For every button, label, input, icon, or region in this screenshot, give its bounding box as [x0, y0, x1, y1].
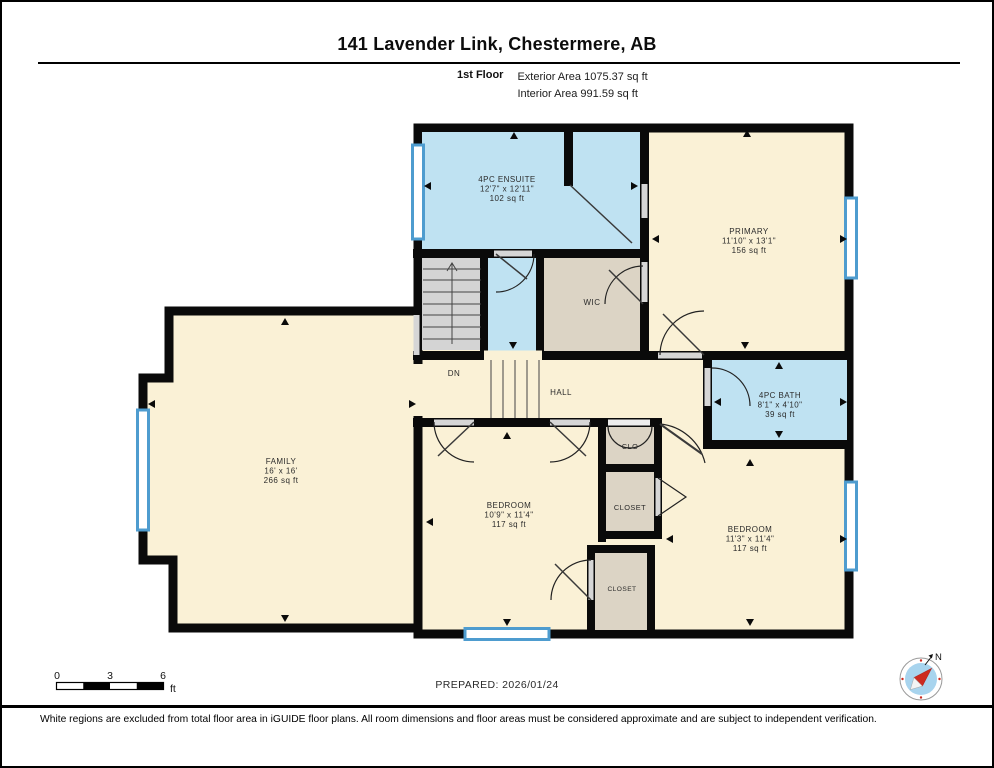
svg-text:266 sq ft: 266 sq ft [264, 476, 299, 485]
svg-text:8'1" x 4'10": 8'1" x 4'10" [758, 401, 803, 410]
window-family-left [138, 410, 149, 530]
room-label-bedroom-right: BEDROOM [728, 525, 773, 534]
window-ensuite-left [413, 145, 424, 239]
window-primary-right [846, 198, 857, 278]
svg-text:10'9" x 11'4": 10'9" x 11'4" [484, 511, 533, 520]
compass-n-label: N [935, 652, 942, 663]
room-label-family: FAMILY [266, 457, 297, 466]
room-label-closet-bottom: CLOSET [607, 586, 636, 593]
floor-plan-drawing: 4PC ENSUITE 12'7" x 12'11" 102 sq ft PRI… [2, 2, 994, 768]
footer-divider [2, 705, 994, 708]
svg-text:102 sq ft: 102 sq ft [490, 194, 525, 203]
floor-plan-page: 141 Lavender Link, Chestermere, AB 1st F… [0, 0, 994, 768]
svg-text:156 sq ft: 156 sq ft [732, 246, 767, 255]
room-label-primary: PRIMARY [729, 227, 769, 236]
room-label-closet-mid: CLOSET [614, 503, 646, 512]
compass: N [900, 652, 942, 700]
room-label-ensuite: 4PC ENSUITE [478, 175, 535, 184]
svg-text:12'7" x 12'11": 12'7" x 12'11" [480, 185, 534, 194]
window-bedroom-bottom [465, 629, 549, 640]
svg-text:117 sq ft: 117 sq ft [492, 520, 526, 529]
disclaimer-text: White regions are excluded from total fl… [40, 714, 877, 725]
room-label-wic: WIC [584, 298, 601, 307]
room-label-hall: HALL [550, 388, 572, 397]
room-label-clo: CLO [622, 442, 639, 451]
svg-text:16' x 16': 16' x 16' [264, 467, 297, 476]
svg-text:11'10" x 13'1": 11'10" x 13'1" [722, 237, 776, 246]
room-label-bedroom-center: BEDROOM [487, 501, 532, 510]
room-label-bath: 4PC BATH [759, 391, 801, 400]
stairs-dn-label: DN [448, 369, 460, 378]
svg-text:117 sq ft: 117 sq ft [733, 544, 767, 553]
svg-text:11'3" x 11'4": 11'3" x 11'4" [726, 535, 775, 544]
prepared-date: PREPARED: 2026/01/24 [2, 679, 992, 691]
svg-text:39 sq ft: 39 sq ft [765, 410, 795, 419]
room-closet-mid [606, 472, 654, 531]
window-bedroom-right [846, 482, 857, 570]
